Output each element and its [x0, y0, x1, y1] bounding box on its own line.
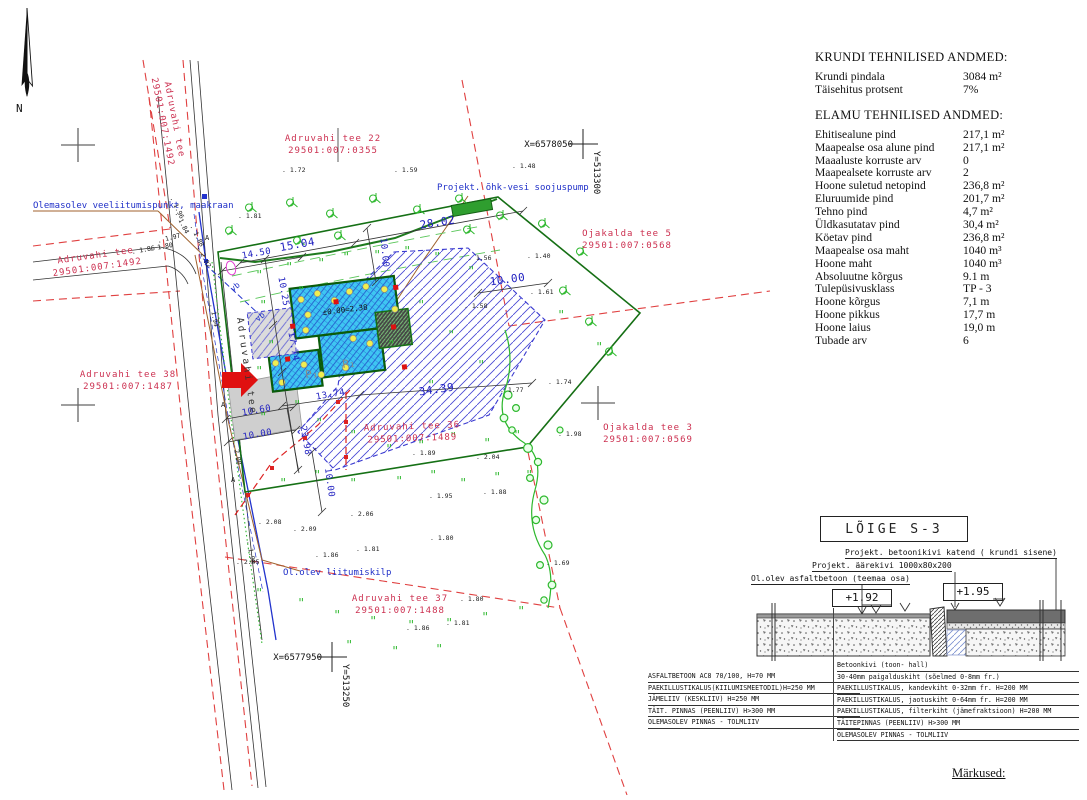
grass-symbol — [376, 250, 378, 253]
spot-elevation: . 1.77 — [500, 386, 524, 394]
spot-elevation: . 1.59 — [394, 166, 418, 174]
tech-row-label: Tubade arv — [815, 334, 867, 347]
krundi-rows: Krundi pindala3084 m²Täisehitus protsent… — [815, 71, 1085, 97]
grass-symbol — [320, 258, 322, 261]
parcel-label: Adruvahi tee 3729501:007:1488 — [352, 594, 448, 616]
tech-row-label: Hoone pikkus — [815, 308, 880, 321]
spot-elevation: . 1.72 — [282, 166, 306, 174]
grass-symbol — [496, 472, 498, 475]
station-label: A — [205, 234, 210, 242]
spot-elevation: . 1.98 — [558, 430, 582, 438]
elamu-rows: Ehitisealune pind217,1 m²Maapealse osa a… — [815, 129, 1085, 348]
dimension-label: 14.50 — [241, 247, 272, 262]
tree-symbol — [456, 193, 467, 203]
tech-row-label: Absoluutne kõrgus — [815, 270, 903, 283]
krundi-title: KRUNDI TEHNILISED ANDMED: — [815, 50, 1085, 65]
tech-row-label: Maapealse osa alune pind — [815, 141, 934, 154]
grass-symbol — [528, 470, 530, 473]
tree-symbol — [414, 204, 425, 214]
spot-elevation: . 1.84 — [173, 210, 191, 235]
tech-row-label: Ehitisealune pind — [815, 128, 896, 141]
spot-elevation: . 1.48 — [512, 162, 536, 170]
dimension-label: 10.25 — [275, 276, 290, 307]
dimension-label: 10.00 — [377, 238, 390, 268]
bedding-layer — [947, 623, 1065, 629]
tree-symbol — [464, 224, 475, 234]
layer-row: Betoonkivi (toon- hall) — [837, 660, 1079, 672]
grass-symbol — [262, 300, 264, 303]
section-drawing — [750, 545, 1087, 662]
grass-symbol — [520, 606, 522, 609]
spot-elevation: . 1.80 — [460, 595, 484, 603]
layer-row: PAEKILLUSTIKALUS, jaotuskiht 0-64mm fr. … — [837, 695, 1079, 707]
spot-elevation: . 2.00 — [231, 441, 243, 466]
tech-row-value: 6 — [963, 335, 969, 348]
tech-row-value: 1040 m³ — [963, 258, 1002, 271]
elamu-title: ELAMU TEHNILISED ANDMED: — [815, 108, 1085, 123]
tree-symbol — [246, 202, 257, 212]
grass-symbol — [282, 478, 284, 481]
tree-symbol — [335, 230, 346, 240]
tech-row-label: Täisehitus protsent — [815, 83, 903, 96]
curb-block — [930, 607, 947, 656]
grass-symbol — [336, 610, 338, 613]
spot-elevation: . 1.56 — [468, 254, 492, 262]
layer-row: ASFALTBETOON AC8 70/100, H=70 MM — [648, 671, 860, 683]
tree-symbol — [226, 225, 237, 235]
grass-symbol — [300, 598, 302, 601]
grass-symbol — [398, 476, 400, 479]
annotation-label: Olemasolev veeliitumispunkt, maakraan — [33, 201, 233, 211]
spot-elevation: . 1.81 — [238, 212, 262, 220]
tech-row-label: Maapealsete korruste arv — [815, 166, 932, 179]
tech-data-panel: KRUNDI TEHNILISED ANDMED: Krundi pindala… — [815, 50, 1085, 348]
grass-symbol — [516, 430, 518, 433]
grass-symbol — [258, 366, 260, 369]
tech-row: Täisehitus protsent7% — [815, 84, 1085, 97]
tech-row-label: Üldkasutatav pind — [815, 218, 900, 231]
grass-symbol — [258, 588, 260, 591]
layer-row: TÄITEPINNAS (PEENLIIV) H>300 MM — [837, 718, 1079, 730]
tech-row-label: Hoone laius — [815, 321, 871, 334]
survey-point-marker — [225, 260, 237, 276]
tech-row-label: Hoone suletud netopind — [815, 179, 926, 192]
site-plan-sheet: N — [0, 0, 1087, 800]
tech-row-label: Hoone kõrgus — [815, 295, 880, 308]
tech-row-value: 7% — [963, 84, 978, 97]
tech-row-value: 3084 m² — [963, 71, 1002, 84]
spot-elevation: . 1.61 — [530, 288, 554, 296]
layers-table-right: Betoonkivi (toon- hall)30-40mm paigaldus… — [833, 660, 1079, 741]
tree-symbol — [560, 285, 571, 295]
grass-symbol — [316, 470, 318, 473]
grass-symbol — [258, 270, 260, 273]
spot-elevation: . 1.86 — [315, 551, 339, 559]
grass-symbol — [394, 646, 396, 649]
spot-elevation: . 1.81 — [446, 619, 470, 627]
section-title-box: LÕIGE S-3 — [820, 516, 968, 542]
tech-row-value: 30,4 m² — [963, 219, 999, 232]
parcel-label: Adruvahi tee29501:007:1492 — [51, 245, 143, 279]
tech-row-label: Maapealse osa maht — [815, 244, 909, 257]
spot-elevation: . 2.04 — [476, 453, 500, 461]
grass-symbol — [598, 342, 600, 345]
tree-symbol — [586, 316, 597, 326]
spot-elevation: . 1.88 — [483, 488, 507, 496]
spot-elevation: . 1.81 — [356, 545, 380, 553]
coordinate-x-label: X=6577950 — [273, 653, 322, 663]
spot-elevation: . 1.40 — [527, 252, 551, 260]
north-arrow-icon: N — [16, 8, 33, 115]
layer-row: PAEKILLUSTIKALUS, kandevkiht 0-32mm fr. … — [837, 683, 1079, 695]
dimension-label: 15.04 — [279, 235, 316, 254]
tree-symbol — [287, 197, 298, 207]
spot-elevation: . 1.89 — [412, 449, 436, 457]
layer-row: PAEKILLUSTIKALUS(KIILUMISMEETODIL)H=250 … — [648, 683, 860, 695]
base-layer — [966, 629, 1065, 656]
layer-row: OLEMASOLEV PINNAS - TOLMLIIV — [648, 717, 860, 729]
grass-symbol — [406, 246, 408, 249]
paving-surface — [947, 610, 1065, 623]
grass-symbol — [348, 640, 350, 643]
grass-symbol — [560, 310, 562, 313]
spot-elevation: . 2.02 — [195, 244, 213, 269]
section-title: LÕIGE S-3 — [845, 522, 942, 537]
layer-row: PAEKILLUSTIKALUS, filterkiht (jämefrakts… — [837, 706, 1079, 718]
grass-symbol — [462, 478, 464, 481]
vb-label: vb — [229, 280, 242, 293]
spot-elevation: . 1.74 — [548, 378, 572, 386]
grass-symbol — [484, 612, 486, 615]
layer-row: OLEMASOLEV PINNAS - TOLMLIIV — [837, 730, 1079, 742]
spot-elevation: . 2.06 — [350, 510, 374, 518]
parcel-label: Adruvahi tee 2229501:007:0355 — [285, 134, 381, 156]
parcel-label: Adruvahi tee 3829501:007:1487 — [80, 370, 176, 392]
asphalt-block — [757, 614, 930, 656]
tree-symbol — [370, 193, 381, 203]
tech-row-value: 217,1 m² — [963, 142, 1004, 155]
tech-row-value: 217,1 m² — [963, 129, 1004, 142]
spot-elevation: . 1.69 — [546, 559, 570, 567]
dimension-label: 28.02 — [419, 213, 456, 231]
tech-row-label: Krundi pindala — [815, 70, 885, 83]
coordinate-y-label: Y=513250 — [340, 664, 350, 707]
tree-symbol — [539, 218, 550, 228]
spot-elevation: . 1.58 — [464, 302, 488, 310]
coordinate-y-label: Y=513300 — [591, 151, 601, 194]
tech-row-label: Köetav pind — [815, 231, 872, 244]
coordinate-x-label: X=6578050 — [524, 140, 573, 150]
tree-symbol — [327, 208, 338, 218]
tech-row-label: Eluruumide pind — [815, 192, 893, 205]
spot-elevation: . 2.09 — [293, 525, 317, 533]
tech-row-label: Maaaluste korruste arv — [815, 154, 921, 167]
spot-elevation: . 1.80 — [430, 534, 454, 542]
grass-symbol — [438, 644, 440, 647]
layer-row: 30-40mm paigalduskiht (sõelmed 0-8mm fr.… — [837, 672, 1079, 684]
tech-row: Tubade arv6 — [815, 335, 1085, 348]
parcel-label: Ojakalda tee 329501:007:0569 — [603, 423, 693, 445]
grass-symbol — [372, 616, 374, 619]
grass-symbol — [432, 470, 434, 473]
annotation-label: Ol.olev liitumiskilp — [283, 568, 391, 578]
grass-symbol — [288, 262, 290, 265]
spot-elevation: . 1.86 — [406, 624, 430, 632]
parking-label-2: P₁ — [341, 356, 356, 371]
markused-heading: Märkused: — [952, 766, 1005, 781]
tech-row-label: Hoone maht — [815, 257, 872, 270]
parking-label-1: P₁ — [304, 367, 319, 382]
annotation-label: Projekt. õhk-vesi soojuspump — [437, 183, 589, 193]
tech-row-value: 1040 m³ — [963, 245, 1002, 258]
tech-row-label: Tulepüsivusklass — [815, 282, 894, 295]
tech-row-label: Tehno pind — [815, 205, 867, 218]
grass-symbol — [410, 620, 412, 623]
spot-elevation: . 1.95 — [429, 492, 453, 500]
grass-symbol — [352, 478, 354, 481]
dimension-label: 10.00 — [322, 467, 336, 498]
grass-symbol — [486, 438, 488, 441]
table-leader-line — [833, 608, 834, 662]
parcel-label: Ojakalda tee 529501:007:0568 — [582, 229, 672, 251]
spot-elevation: . 1.80 — [149, 241, 174, 253]
north-label: N — [16, 102, 23, 115]
layer-row: JÄMELIIV (KESKLIIV) H=250 MM — [648, 694, 860, 706]
layer-row: TÄIT. PINNAS (PEENLIIV) H>300 MM — [648, 706, 860, 718]
grass-symbol — [345, 252, 347, 255]
layers-table-left: ASFALTBETOON AC8 70/100, H=70 MMPAEKILLU… — [648, 671, 860, 729]
spot-elevation: . 2.08 — [258, 518, 282, 526]
station-label: A — [231, 476, 236, 484]
tech-row-value: 236,8 m² — [963, 232, 1004, 245]
